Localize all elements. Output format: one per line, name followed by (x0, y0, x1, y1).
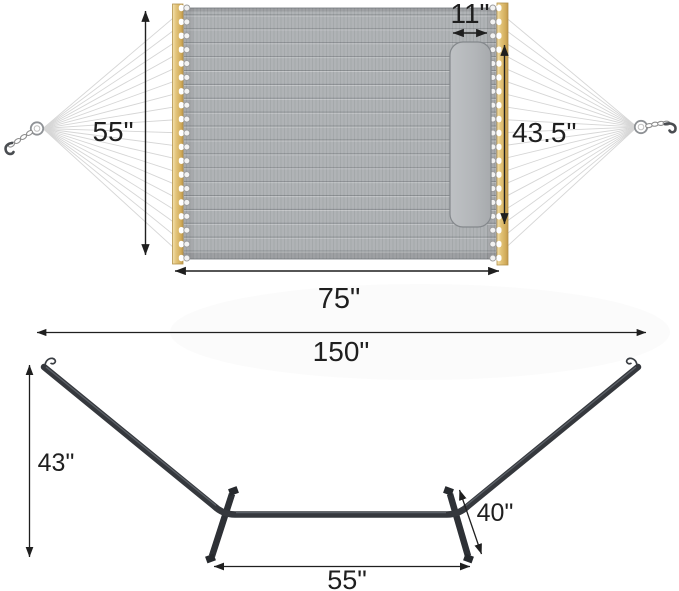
grommet (184, 74, 190, 80)
dim-stand-base-width-label: 55" (327, 565, 367, 591)
grommet (490, 255, 496, 261)
lacing-dash (497, 33, 502, 39)
lacing-dash (179, 255, 184, 261)
stand-left-arm-highlight (46, 367, 216, 506)
stand-right-foot (450, 494, 468, 556)
lacing-dash (497, 213, 502, 219)
dim-stand-base-width: 55" (214, 565, 470, 591)
pillow (450, 42, 491, 227)
rope-string (43, 8, 185, 129)
lacing-dash (497, 227, 502, 233)
lacing-dash (497, 144, 502, 150)
dim-pillow-length-label: 43.5" (512, 117, 576, 148)
lacing-dash (497, 116, 502, 122)
lacing-dash (179, 144, 184, 150)
diagram-canvas: 55" 11" 43.5" 75" 150" 43" 40" 55" (0, 0, 679, 591)
lacing-dash (497, 19, 502, 25)
rope-string (495, 22, 638, 127)
lacing-dash (179, 213, 184, 219)
grommet (184, 144, 190, 150)
lacing-dash (497, 74, 502, 80)
right-hanging-ring-inner (638, 124, 644, 130)
grommet (184, 116, 190, 122)
lacing-dash (497, 102, 502, 108)
dim-hammock-bed-width: 55" (92, 11, 145, 255)
dim-stand-overall-length-label: 150" (313, 336, 370, 367)
left-hanging-ring-inner (34, 126, 40, 132)
grommet (184, 255, 190, 261)
grommet (184, 186, 190, 192)
lacing-dash (497, 158, 502, 164)
grommet (184, 130, 190, 136)
left-chain (8, 129, 34, 148)
lacing-dash (497, 60, 502, 66)
stand-left-hook (45, 358, 55, 365)
dim-hammock-bed-length-label: 75" (318, 283, 361, 315)
lacing-dash (497, 199, 502, 205)
grommet (184, 158, 190, 164)
lacing-dash (179, 130, 184, 136)
rope-string (495, 36, 638, 127)
stand-frame (44, 367, 638, 515)
lacing-dash (179, 185, 184, 191)
dim-pillow-width: 11" (450, 0, 489, 33)
rope-string (43, 22, 185, 129)
rope-string (495, 50, 638, 127)
grommet (184, 102, 190, 108)
grommet (490, 19, 496, 25)
stand-side-view (44, 284, 670, 563)
grommet (184, 172, 190, 178)
grommet (184, 241, 190, 247)
lacing-dash (497, 88, 502, 94)
lacing-dash (179, 171, 184, 177)
lacing-dash (179, 227, 184, 233)
grommet (490, 5, 496, 11)
lacing-dash (179, 74, 184, 80)
dim-hammock-bed-width-label: 55" (92, 116, 133, 147)
grommet (184, 88, 190, 94)
lacing-dash (497, 255, 502, 261)
dim-stand-leg-length-label: 40" (477, 499, 514, 527)
lacing-dash (179, 5, 184, 11)
lacing-dash (497, 171, 502, 177)
stand-right-arm-highlight (466, 367, 636, 506)
lacing-dash (179, 46, 184, 52)
lacing-dash (179, 102, 184, 108)
lacing-dash (497, 46, 502, 52)
grommet (184, 33, 190, 39)
grommet (184, 213, 190, 219)
lacing-dash (179, 241, 184, 247)
dim-pillow-width-label: 11" (450, 0, 489, 29)
grommet (184, 227, 190, 233)
grommet (184, 5, 190, 11)
lacing-dash (179, 116, 184, 122)
rope-string (43, 36, 185, 129)
stand-right-hook (627, 358, 637, 365)
lacing-dash (497, 241, 502, 247)
lacing-dash (179, 88, 184, 94)
fabric-bottom-hem (183, 252, 497, 259)
grommet (490, 241, 496, 247)
lacing-dash (179, 33, 184, 39)
grommet (184, 61, 190, 67)
right-s-hook (665, 124, 676, 133)
lacing-dash (497, 5, 502, 11)
dim-stand-height: 43" (30, 365, 75, 557)
grommet (184, 199, 190, 205)
grommet (490, 227, 496, 233)
lacing-dash (179, 199, 184, 205)
lacing-dash (179, 19, 184, 25)
grommet (490, 33, 496, 39)
rope-string (43, 129, 185, 259)
lacing-dash (497, 185, 502, 191)
grommet (184, 47, 190, 53)
dim-stand-height-label: 43" (38, 449, 75, 477)
lacing-dash (179, 60, 184, 66)
product-dimension-diagram: 55" 11" 43.5" 75" 150" 43" 40" 55" (0, 0, 679, 591)
lacing-dash (497, 130, 502, 136)
lacing-dash (179, 158, 184, 164)
grommet (184, 19, 190, 25)
